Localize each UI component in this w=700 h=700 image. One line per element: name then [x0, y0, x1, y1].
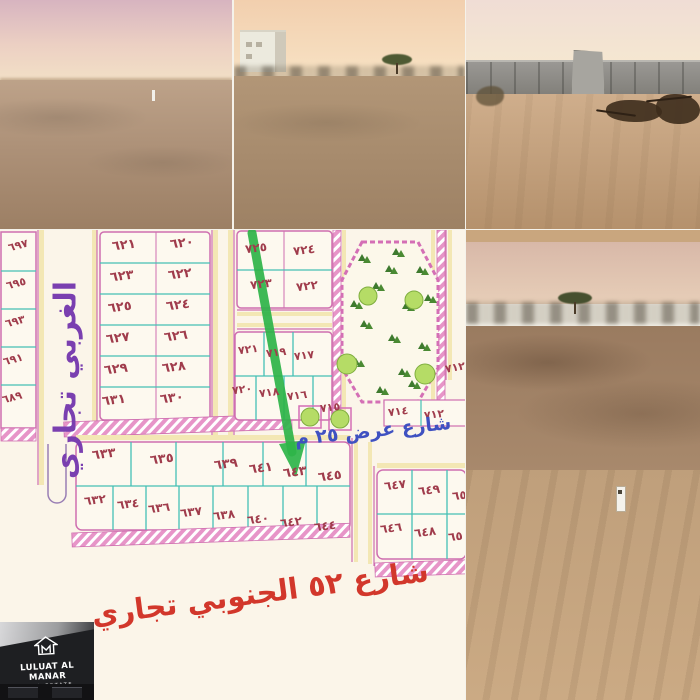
plot-number-642: ٦٤٢ [279, 515, 302, 530]
survey-post [152, 90, 155, 101]
agency-logo-photo: LULUAT AL MANAR REAL ESTATE 0500204050 [0, 622, 94, 700]
tree-trunk [574, 302, 576, 314]
plot-number-644: ٦٤٤ [313, 519, 336, 534]
plot-number-647: ٦٤٧ [383, 478, 406, 493]
plot-number-723: ٧٢٣ [249, 277, 272, 292]
plot-number-719: ٧١٩ [265, 346, 286, 359]
plot-number-712-mid: ٧١٢ [444, 360, 465, 374]
plot-number-639: ٦٣٩ [213, 457, 238, 473]
plot-number-624: ٦٢٤ [165, 298, 190, 314]
plot-number-627: ٦٢٧ [105, 331, 130, 347]
storefront-windows [0, 684, 94, 700]
house-logo-icon [33, 635, 58, 656]
window [256, 42, 262, 47]
window [52, 687, 82, 698]
plot-number-635: ٦٣٥ [149, 452, 174, 468]
plot-number-643-target: ٦٤٣ [282, 465, 307, 481]
plot-number-649: ٦٤٩ [417, 483, 440, 498]
plot-number-633: ٦٣٣ [91, 447, 116, 463]
window [246, 54, 252, 59]
plot-number-724: ٧٢٤ [292, 243, 315, 258]
plot-number-720: ٧٢٠ [231, 383, 252, 396]
plot-number-632: ٦٣٢ [83, 493, 106, 508]
plot-number-620: ٦٢٠ [169, 236, 194, 252]
plot-number-718: ٧١٨ [258, 386, 279, 399]
plot-number-622: ٦٢٢ [167, 267, 192, 283]
plot-number-648: ٦٤٨ [413, 525, 436, 540]
photo-desert-sunset [0, 0, 232, 229]
plot-number-634: ٦٣٤ [116, 497, 139, 512]
plot-number-631: ٦٣١ [101, 393, 126, 409]
plot-number-626: ٦٢٦ [163, 329, 188, 345]
plot-number-625: ٦٢٥ [107, 300, 132, 316]
label-west-commercial-street: الغربي تجاري [49, 281, 84, 479]
sand-foreground-tracks [466, 470, 700, 700]
plot-number-716: ٧١٦ [286, 389, 307, 402]
plot-number-636: ٦٣٦ [147, 501, 170, 516]
tree-trunk [396, 63, 398, 74]
plot-number-621: ٦٢١ [111, 238, 136, 254]
plot-number-646: ٦٤٦ [379, 521, 402, 536]
plot-number-629: ٦٢٩ [103, 362, 128, 378]
window [246, 42, 252, 47]
plot-number-630: ٦٣٠ [159, 391, 184, 407]
plot-number-637: ٦٣٧ [179, 505, 202, 520]
plot-number-717: ٧١٧ [293, 349, 314, 362]
marker-label [618, 490, 622, 494]
plot-number-715: ٧١٥ [319, 401, 340, 414]
photo-boundary-wall [466, 0, 700, 229]
scrub-horizon [466, 302, 700, 324]
plot-number-628: ٦٢٨ [161, 360, 186, 376]
listing-collage: حراج [0, 0, 700, 700]
photo-edge-strip [466, 230, 700, 242]
photo-open-plot: حراج [466, 230, 700, 700]
plot-number-638: ٦٣٨ [212, 508, 235, 523]
sand-dark-zone [466, 326, 700, 472]
plot-number-640: ٦٤٠ [246, 512, 269, 527]
sky [0, 0, 232, 82]
sand-ground [0, 80, 232, 229]
gate-structure [571, 50, 605, 98]
window [8, 687, 38, 698]
dry-bush [476, 86, 504, 106]
plot-number-725: ٧٢٥ [244, 241, 267, 256]
plot-number-721: ٧٢١ [237, 343, 258, 356]
plot-number-651: ٦٥١ [451, 488, 465, 503]
photo-desert-building [234, 0, 465, 229]
plot-number-645: ٦٤٥ [317, 469, 342, 485]
plot-number-650: ٦٥٠ [447, 529, 465, 544]
plot-number-623: ٦٢٣ [109, 269, 134, 285]
plot-number-641: ٦٤١ [248, 461, 273, 477]
plot-number-722: ٧٢٢ [295, 279, 318, 294]
sand-ground [234, 76, 465, 229]
